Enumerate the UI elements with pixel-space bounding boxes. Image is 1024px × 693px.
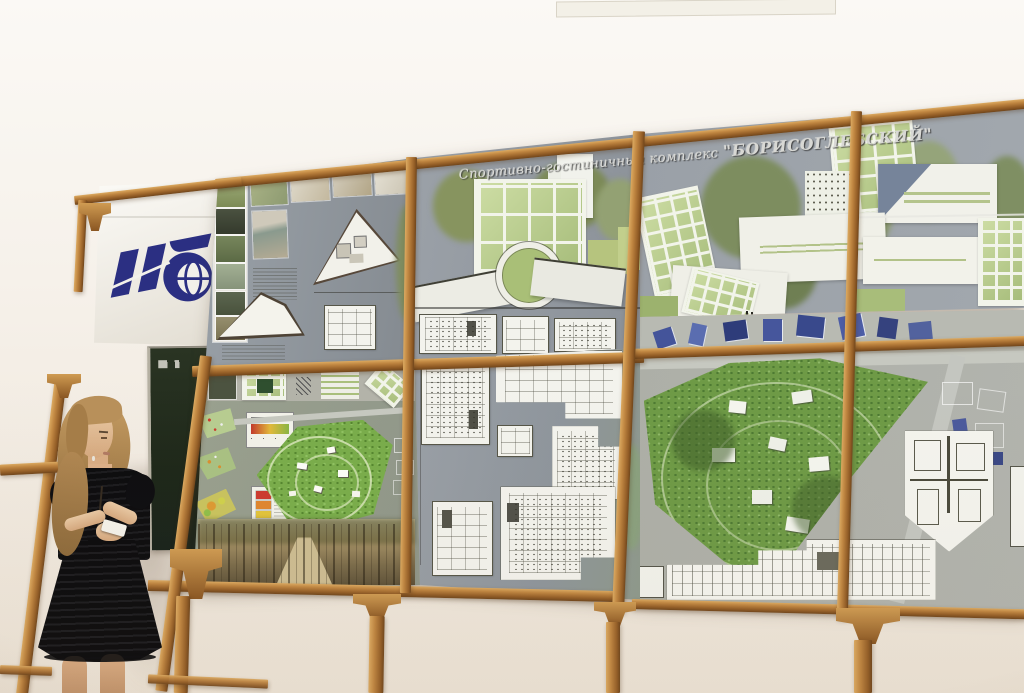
- plan-room: [914, 440, 941, 471]
- hatch-mark: [296, 377, 311, 395]
- room: [354, 236, 367, 249]
- section-mark: [817, 552, 839, 570]
- park-building: [352, 491, 361, 497]
- presenter-earring: [92, 456, 95, 461]
- presentation-room-photo: Спортивно-гостиничный комплекс "БОРИСОГЛ…: [0, 0, 1024, 693]
- site-building: [752, 490, 772, 504]
- plan-room: [958, 489, 981, 522]
- site-photo: [216, 264, 245, 289]
- plan-wall: [947, 436, 950, 513]
- room: [349, 254, 363, 263]
- window-dot-block: [805, 171, 851, 218]
- site-photo: [216, 209, 245, 234]
- ground-line: [415, 307, 640, 309]
- park-building: [289, 491, 296, 496]
- section-drawing: [667, 540, 936, 600]
- dark-grove: [672, 410, 735, 471]
- stair-core: [467, 321, 476, 336]
- stair-core: [469, 410, 478, 428]
- frame-leg: [368, 616, 384, 693]
- white-slab: [863, 237, 978, 284]
- floor-plan: [503, 317, 548, 353]
- blue-building: [763, 319, 782, 341]
- green-glass-facade: [978, 218, 1024, 307]
- blue-building: [908, 320, 933, 341]
- presenter-hem-shadow: [44, 652, 156, 662]
- floor-plan: [498, 426, 532, 456]
- blue-building: [688, 323, 707, 347]
- site-building: [808, 456, 829, 472]
- striped-elevation: [321, 372, 359, 399]
- board-bottom-left: [193, 360, 420, 590]
- legend-gradient-bar: [251, 424, 289, 434]
- board-bottom-center: [415, 348, 640, 600]
- stair-core: [507, 503, 518, 522]
- floor-plan: [422, 361, 490, 444]
- glazing-lines: [672, 544, 930, 596]
- presenter-eye: [101, 437, 107, 439]
- site-photo: [216, 292, 245, 315]
- dark-green-panel: [257, 379, 274, 393]
- window-band: [904, 192, 990, 195]
- blue-building: [877, 316, 899, 339]
- blue-building: [796, 314, 825, 338]
- forest-panorama-photo: [198, 519, 416, 586]
- plan-wall: [910, 479, 988, 481]
- floor-plan: [555, 319, 616, 351]
- stair-core: [442, 510, 453, 528]
- site-photo: [216, 236, 245, 261]
- partial-plan: [1011, 467, 1024, 546]
- dimension-line: [314, 292, 402, 293]
- building-outline: [977, 388, 1007, 413]
- analysis-map: [195, 447, 236, 479]
- window-band: [874, 256, 966, 261]
- dimension-line: [420, 363, 421, 565]
- partial-plan: [640, 567, 663, 597]
- hedge-wall: [851, 289, 905, 316]
- tree-trunks: [198, 524, 416, 585]
- small-plan: [325, 306, 375, 348]
- board-top-left: [205, 158, 415, 370]
- frame-leg: [606, 622, 620, 693]
- window-band: [904, 200, 990, 203]
- floor-plan: [433, 502, 492, 575]
- building-outline: [942, 382, 973, 405]
- blue-building: [723, 319, 748, 341]
- plan-room: [956, 443, 984, 472]
- plan-room: [917, 489, 938, 525]
- floor-plan: [420, 315, 497, 353]
- legend-ticks: [251, 438, 289, 439]
- site-building: [728, 400, 746, 413]
- park-building: [338, 470, 348, 477]
- text-block: [222, 345, 285, 362]
- presenter: [0, 390, 200, 693]
- frame-leg: [854, 640, 872, 693]
- interior-photo: [252, 210, 287, 258]
- floor-plan: [501, 487, 616, 580]
